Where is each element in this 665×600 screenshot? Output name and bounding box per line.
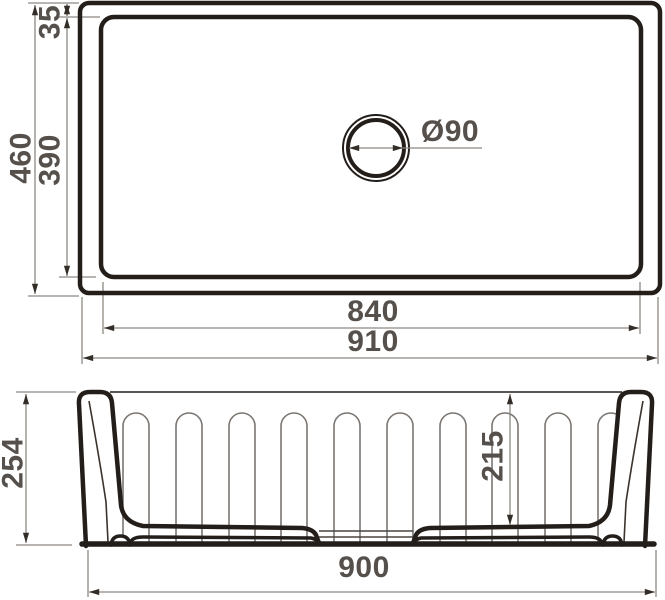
apron-flute	[545, 413, 571, 543]
dim-label-front-height: 254	[0, 437, 30, 489]
dim-label-bowl-depth: 215	[477, 430, 510, 482]
apron-flute	[281, 413, 307, 543]
dim-label-base-width: 900	[338, 551, 390, 584]
apron-flute	[440, 413, 466, 543]
sink-bowl-edge	[101, 17, 641, 277]
apron-flute	[229, 413, 255, 543]
top-view: 460 390 35 Ø90 840 910	[5, 3, 661, 364]
dim-label-rim-offset: 35	[34, 5, 67, 39]
dim-label-height-inner: 390	[34, 134, 67, 186]
front-view: 254 215 900	[0, 392, 656, 597]
apron-flute	[387, 413, 413, 543]
sink-technical-drawing: 460 390 35 Ø90 840 910	[0, 0, 665, 600]
dim-label-width-total: 910	[347, 325, 399, 358]
dim-label-width-inner: 840	[347, 295, 399, 328]
apron-flute	[334, 413, 360, 543]
drawing-canvas: 460 390 35 Ø90 840 910	[0, 0, 665, 600]
apron-flute	[176, 413, 202, 543]
apron-flutes	[123, 413, 624, 543]
dim-label-drain-diameter: Ø90	[421, 115, 479, 148]
